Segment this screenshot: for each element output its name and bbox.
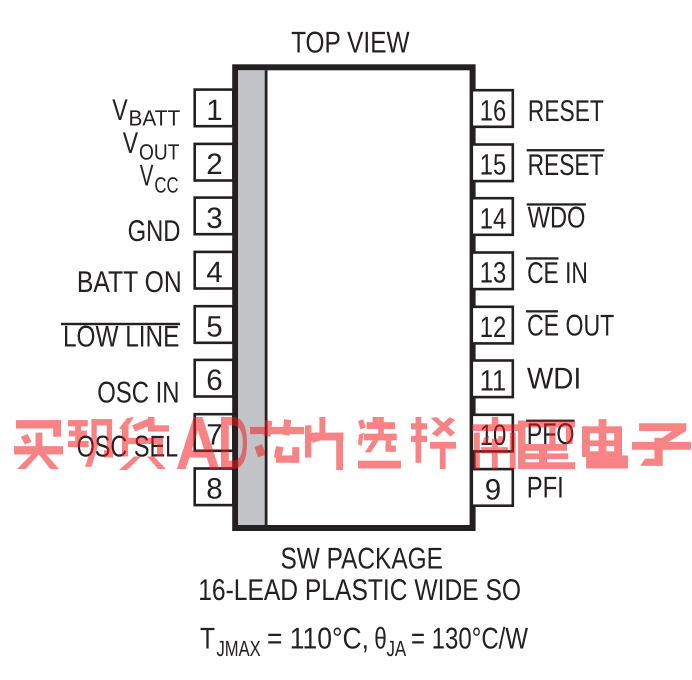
svg-text:OSC IN: OSC IN [97,377,179,410]
svg-text:LOW LINE: LOW LINE [63,321,179,354]
svg-text:V: V [140,160,154,193]
svg-text:= 130°C/W: = 130°C/W [411,623,529,656]
svg-text:WDI: WDI [527,362,581,395]
svg-text:TOP VIEW: TOP VIEW [291,26,410,59]
svg-text:6: 6 [206,364,222,397]
svg-text:PFI: PFI [527,472,564,505]
svg-text:8: 8 [206,473,222,506]
svg-text:14: 14 [480,202,507,235]
svg-text:SW PACKAGE: SW PACKAGE [281,543,443,576]
svg-text:GND: GND [128,215,181,248]
svg-text:JMAX: JMAX [217,636,261,661]
svg-text:BATT ON: BATT ON [77,266,182,299]
svg-text:RESET: RESET [528,95,604,128]
svg-text:16: 16 [480,94,507,127]
svg-text:4: 4 [206,256,222,289]
svg-text:1: 1 [206,94,222,127]
svg-text:RESET: RESET [528,149,604,182]
svg-text:CE IN: CE IN [527,257,588,290]
svg-text:V: V [112,94,127,127]
svg-text:V: V [123,127,138,160]
svg-text:CC: CC [154,173,178,198]
svg-text:θ: θ [374,623,387,656]
svg-text:T: T [200,623,215,656]
svg-text:5: 5 [206,310,222,343]
svg-text:3: 3 [206,202,222,235]
svg-text:WDO: WDO [528,201,586,234]
svg-text:11: 11 [480,365,507,398]
svg-text:= 110°C,: = 110°C, [267,623,369,656]
svg-text:16-LEAD PLASTIC WIDE SO: 16-LEAD PLASTIC WIDE SO [198,574,521,607]
svg-text:13: 13 [480,257,507,290]
svg-text:9: 9 [485,473,501,506]
svg-text:JA: JA [387,636,407,661]
svg-text:CE OUT: CE OUT [527,309,614,342]
svg-text:15: 15 [480,149,507,182]
svg-text:2: 2 [206,148,222,181]
svg-text:12: 12 [480,311,507,344]
